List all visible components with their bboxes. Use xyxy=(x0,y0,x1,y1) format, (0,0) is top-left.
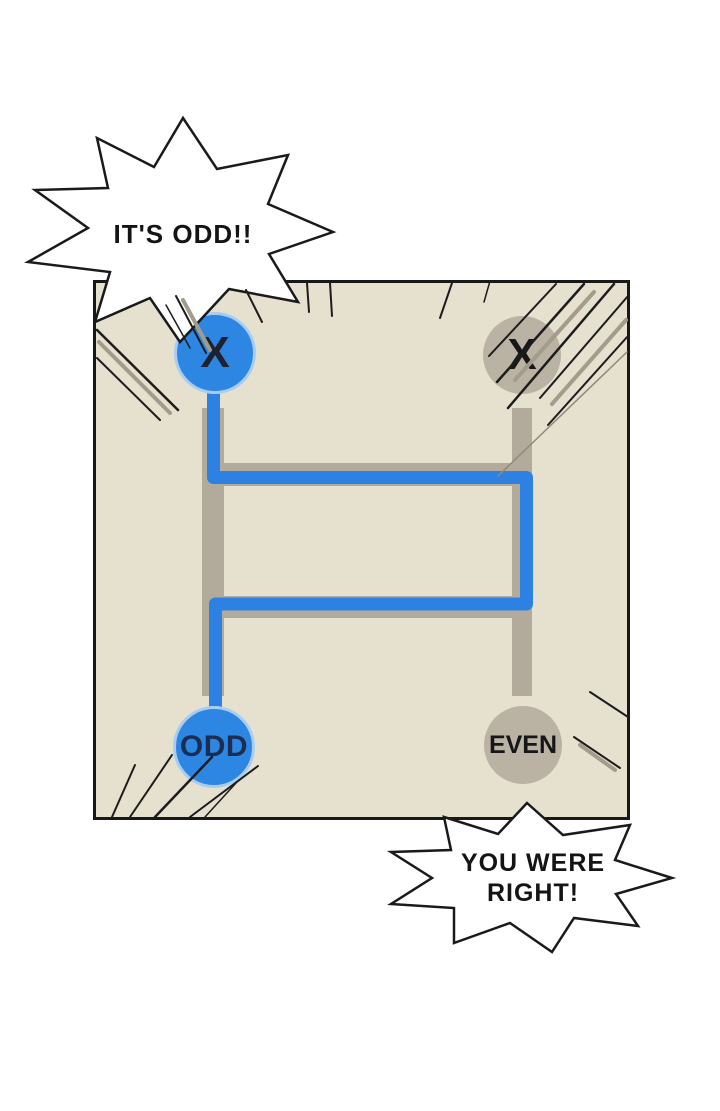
node-start-right-label: X xyxy=(507,330,536,380)
node-start-left: X xyxy=(174,312,256,394)
node-result-even: EVEN xyxy=(484,706,562,784)
node-start-left-label: X xyxy=(200,328,229,378)
ladder-rail-right xyxy=(512,408,532,696)
node-result-even-label: EVEN xyxy=(489,731,557,760)
node-result-odd: ODD xyxy=(173,706,255,788)
speech-text-top: IT'S ODD!! xyxy=(83,219,283,250)
ladder-rung-2 xyxy=(202,596,532,618)
ladder-rail-left xyxy=(202,408,224,696)
ladder-rung-1 xyxy=(202,463,532,486)
node-start-right: X xyxy=(483,316,561,394)
node-result-odd-label: ODD xyxy=(180,730,248,764)
speech-text-bottom: YOU WERE RIGHT! xyxy=(451,849,615,908)
comic-page: X X ODD EVEN xyxy=(0,0,720,1111)
